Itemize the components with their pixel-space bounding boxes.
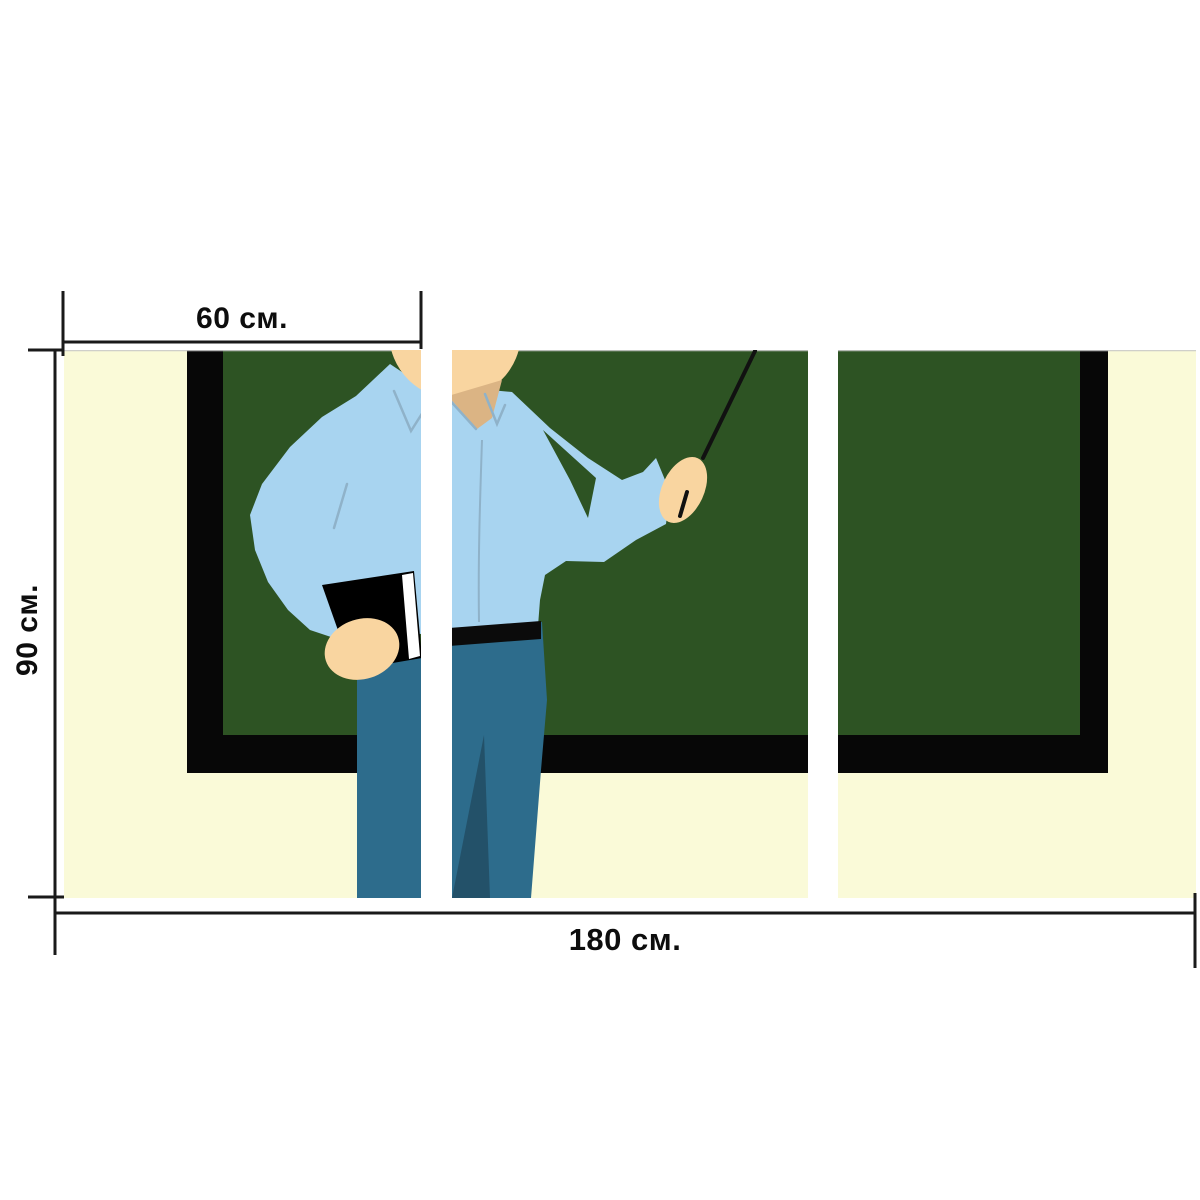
artwork <box>64 267 1196 898</box>
triptych-product-mockup: 60 см. 90 см. 180 см. <box>0 0 1200 1200</box>
triptych-scene <box>0 0 1200 1200</box>
height-label: 90 см. <box>13 584 43 676</box>
panel-width-label: 60 см. <box>63 304 421 334</box>
total-width-label: 180 см. <box>55 924 1195 955</box>
